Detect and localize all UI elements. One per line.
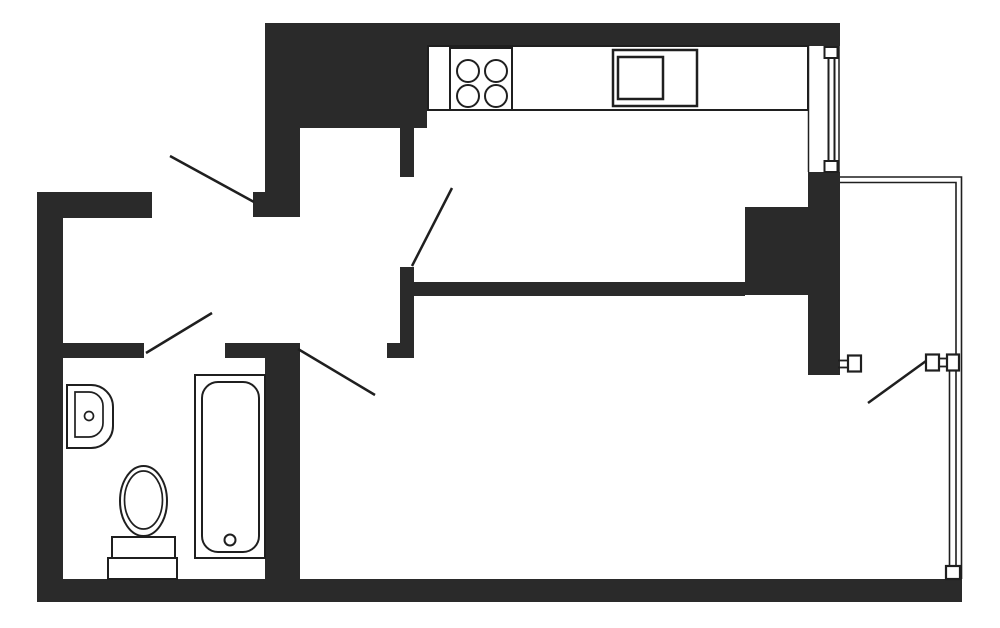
wall-bath-top-left <box>63 343 144 358</box>
wall-right <box>808 172 840 375</box>
floor-plan <box>0 0 1000 628</box>
balcony-door-jamb-right <box>926 355 939 371</box>
balcony-glazing-terminal <box>946 566 960 579</box>
wall-kitchen-living <box>414 282 745 296</box>
wall-kitchen-nw-mass <box>265 23 427 128</box>
toilet-bowl-outer <box>120 466 167 536</box>
balcony-door-jamb-left <box>848 356 861 372</box>
wall-kitchen-door-stub <box>400 128 414 177</box>
floor-plan-canvas <box>0 0 1000 628</box>
stove-burner-4 <box>485 85 507 107</box>
bathtub-drain <box>225 535 236 546</box>
bathtub-outer <box>195 375 265 558</box>
wall-entry-step <box>253 192 265 217</box>
wall-bottom <box>37 579 962 602</box>
wall-left <box>37 192 63 602</box>
stove-burner-1 <box>457 60 479 82</box>
wall-kitchen-door-foot <box>387 343 414 358</box>
entry-door-swing <box>170 156 254 202</box>
bathroom-door-swing <box>146 313 212 353</box>
wall-entry-upper <box>265 128 300 217</box>
wall-living-pier <box>745 207 810 295</box>
balcony-glazing-jamb <box>947 355 959 371</box>
stove-burner-2 <box>485 60 507 82</box>
kitchen-sink-unit <box>613 50 697 106</box>
window-sill-top <box>825 47 838 58</box>
bath-sink-drain <box>85 412 94 421</box>
wall-bath-east <box>265 343 300 579</box>
balcony-door-swing <box>868 361 926 403</box>
window-sill-bottom <box>825 161 838 172</box>
stove-burner-3 <box>457 85 479 107</box>
living-door-swing <box>298 349 375 395</box>
kitchen-door-swing <box>412 188 452 266</box>
toilet-tank <box>112 537 175 558</box>
toilet-base <box>108 558 177 579</box>
